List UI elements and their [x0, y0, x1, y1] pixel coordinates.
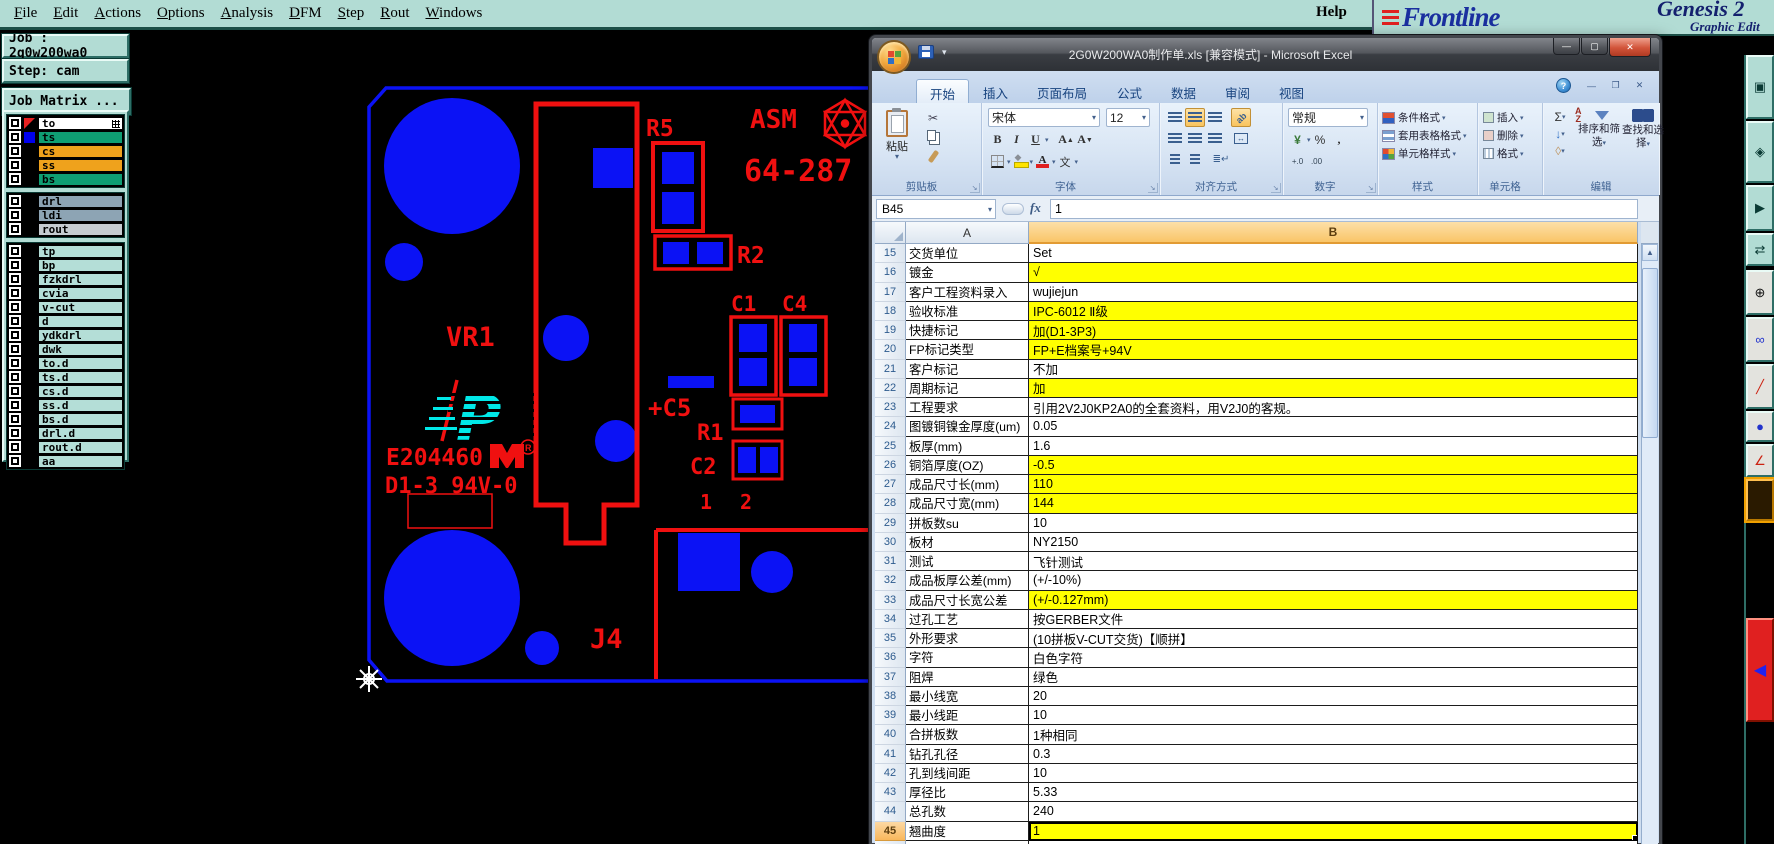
- menu-item-dfm[interactable]: DFM: [281, 3, 330, 24]
- frontline-logo: Frontline: [1382, 2, 1500, 33]
- row-header-19[interactable]: 19: [875, 321, 906, 340]
- row-header-45[interactable]: 45: [875, 822, 906, 841]
- sheet-grid[interactable]: 15交货单位Set16镀金√17客户工程资料录入wujiejun18验收标准IP…: [875, 244, 1638, 844]
- spec-value-cell[interactable]: IPC-6012 Ⅱ级: [1029, 302, 1638, 321]
- toolbar-diamond-button[interactable]: ◈: [1746, 121, 1774, 183]
- currency-button[interactable]: ¥: [1288, 130, 1307, 149]
- layer-visibility-checkbox[interactable]: [9, 329, 21, 341]
- row-header-35[interactable]: 35: [875, 629, 906, 648]
- bold-button[interactable]: B: [988, 130, 1007, 149]
- spec-value-cell[interactable]: wujiejun: [1029, 283, 1638, 302]
- spec-name-cell[interactable]: 成品板厚公差(mm): [906, 571, 1029, 590]
- menu-item-rout[interactable]: Rout: [372, 3, 417, 24]
- spec-name-cell[interactable]: 钻孔孔径: [906, 745, 1029, 764]
- layer-row-bs.d[interactable]: bs.d: [8, 412, 123, 426]
- layer-visibility-checkbox[interactable]: [9, 315, 21, 327]
- scroll-up-icon[interactable]: ▲: [1642, 244, 1658, 261]
- group-label-clipboard: 剪贴板: [872, 179, 971, 194]
- toolbar-active-tool-button[interactable]: [1746, 479, 1774, 521]
- layer-visibility-checkbox[interactable]: [9, 259, 21, 271]
- layer-color-swatch: [23, 195, 38, 208]
- layer-visibility-checkbox[interactable]: [9, 413, 21, 425]
- column-header-a[interactable]: A: [906, 222, 1029, 244]
- layer-row-aa[interactable]: aa: [8, 454, 123, 468]
- toolbar-swap-button[interactable]: ⇄: [1746, 233, 1774, 266]
- row-header-34[interactable]: 34: [875, 610, 906, 629]
- row-header-16[interactable]: 16: [875, 263, 906, 282]
- spec-value-cell[interactable]: -0.5: [1029, 456, 1638, 475]
- layer-name-label[interactable]: ts: [38, 131, 123, 144]
- delete-cells-button[interactable]: 删除▾: [1483, 127, 1524, 144]
- spec-value-cell[interactable]: 1: [1029, 822, 1638, 841]
- help-icon[interactable]: ?: [1556, 78, 1571, 93]
- wrap-text-button[interactable]: ≣↵: [1211, 150, 1231, 169]
- row-header-20[interactable]: 20: [875, 340, 906, 359]
- format-painter-button[interactable]: [922, 147, 944, 165]
- row-header-30[interactable]: 30: [875, 533, 906, 552]
- underline-button[interactable]: U: [1026, 130, 1045, 149]
- row-header-39[interactable]: 39: [875, 706, 906, 725]
- spec-name-cell[interactable]: 周期标记: [906, 379, 1029, 398]
- spec-value-cell[interactable]: 1种相同: [1029, 725, 1638, 744]
- spec-name-cell[interactable]: 合拼板数: [906, 725, 1029, 744]
- menu-item-file[interactable]: File: [6, 3, 45, 24]
- layer-color-swatch: [23, 245, 38, 258]
- spec-value-cell[interactable]: 引用2V2J0KP2A0的全套资料，用V2J0的客规。: [1029, 398, 1638, 417]
- spec-value-cell[interactable]: 飞针测试: [1029, 552, 1638, 571]
- align-bottom-button[interactable]: [1205, 108, 1225, 127]
- layer-name-label[interactable]: drl: [38, 195, 123, 208]
- decrease-decimal-button[interactable]: .00: [1307, 152, 1326, 171]
- row-header-40[interactable]: 40: [875, 725, 906, 744]
- workbook-minimize-icon[interactable]: —: [1584, 78, 1599, 93]
- tab-开始[interactable]: 开始: [916, 79, 969, 103]
- layer-name-label[interactable]: ts.d: [38, 371, 123, 384]
- label-part-number: 64-287: [744, 154, 852, 189]
- label-asm: ASM: [750, 105, 797, 135]
- increase-indent-button[interactable]: [1185, 150, 1205, 169]
- align-center-button[interactable]: [1185, 129, 1205, 148]
- spec-name-cell[interactable]: 成品尺寸长(mm): [906, 475, 1029, 494]
- layer-color-swatch: [23, 371, 38, 384]
- layer-color-swatch: [23, 329, 38, 342]
- layer-row-tp[interactable]: tp: [8, 244, 123, 258]
- layer-name-label[interactable]: ydkdrl: [38, 329, 123, 342]
- layer-row-ts.d[interactable]: ts.d: [8, 370, 123, 384]
- table-row-36: 36字符白色字符: [875, 648, 1638, 667]
- menu-item-edit[interactable]: Edit: [45, 3, 86, 24]
- font-name-select[interactable]: 宋体▾: [988, 108, 1100, 127]
- row-header-36[interactable]: 36: [875, 648, 906, 667]
- spec-value-cell[interactable]: 绿色: [1029, 668, 1638, 687]
- spec-value-cell[interactable]: 加: [1029, 379, 1638, 398]
- layer-visibility-checkbox[interactable]: [9, 287, 21, 299]
- table-row-23: 23工程要求引用2V2J0KP2A0的全套资料，用V2J0的客规。: [875, 398, 1638, 417]
- conditional-formatting-button[interactable]: 条件格式▾: [1382, 109, 1446, 126]
- minimize-button[interactable]: —: [1553, 38, 1580, 55]
- spec-value-cell[interactable]: 10: [1029, 514, 1638, 533]
- layer-name-label[interactable]: ss.d: [38, 399, 123, 412]
- row-header-17[interactable]: 17: [875, 283, 906, 302]
- layer-name-label[interactable]: drl.d: [38, 427, 123, 440]
- spec-name-cell[interactable]: 测试: [906, 552, 1029, 571]
- sort-filter-button[interactable]: AZ 排序和筛选▾: [1575, 107, 1623, 150]
- quick-access-caret-icon[interactable]: ▾: [942, 47, 947, 58]
- save-icon[interactable]: [918, 45, 934, 59]
- fill-color-icon: [1014, 155, 1027, 168]
- layer-row-dwk[interactable]: dwk: [8, 342, 123, 356]
- layer-row-ldi[interactable]: ldi: [8, 208, 123, 222]
- row-header-44[interactable]: 44: [875, 802, 906, 821]
- dialog-launcher-icon[interactable]: ↘: [1366, 183, 1376, 193]
- select-all-corner[interactable]: [875, 222, 906, 244]
- row-header-27[interactable]: 27: [875, 475, 906, 494]
- layer-name-label[interactable]: ss: [38, 159, 123, 172]
- layer-name-label[interactable]: to.d: [38, 357, 123, 370]
- layer-row-d[interactable]: d: [8, 314, 123, 328]
- clear-button[interactable]: ◊▾: [1548, 142, 1572, 159]
- layer-row-to[interactable]: to: [8, 116, 123, 130]
- layer-name-label[interactable]: d: [38, 315, 123, 328]
- table-row-40: 40合拼板数1种相同: [875, 725, 1638, 744]
- row-header-18[interactable]: 18: [875, 302, 906, 321]
- spec-value-cell[interactable]: 5.33: [1029, 783, 1638, 802]
- toolbar-play-button[interactable]: ▶: [1746, 185, 1774, 231]
- font-size-select[interactable]: 12▾: [1106, 108, 1150, 127]
- row-header-29[interactable]: 29: [875, 514, 906, 533]
- layer-color-swatch: [23, 399, 38, 412]
- spec-name-cell[interactable]: FP标记类型: [906, 340, 1029, 359]
- layer-name-label[interactable]: to: [38, 117, 123, 130]
- spec-value-cell[interactable]: FP+E档案号+94V: [1029, 340, 1638, 359]
- row-header-23[interactable]: 23: [875, 398, 906, 417]
- ribbon-group-styles: 条件格式▾ 套用表格格式▾ 单元格样式▾ 样式: [1378, 103, 1478, 195]
- autosum-button[interactable]: Σ▾: [1548, 108, 1572, 125]
- toolbar-angle-button[interactable]: ∠: [1746, 444, 1774, 477]
- layer-name-label[interactable]: ldi: [38, 209, 123, 222]
- dialog-launcher-icon[interactable]: ↘: [1148, 183, 1158, 193]
- spec-name-cell[interactable]: 验收标准: [906, 302, 1029, 321]
- spec-name-cell[interactable]: 板厚(mm): [906, 437, 1029, 456]
- tab-视图[interactable]: 视图: [1266, 79, 1317, 103]
- row-header-32[interactable]: 32: [875, 571, 906, 590]
- svg-text:R: R: [525, 443, 532, 453]
- layer-name-label[interactable]: cvia: [38, 287, 123, 300]
- ribbon-group-font: 宋体▾ 12▾ B I U ▾ A▲ A▼ ▾ ▾ A▾ 文▾: [982, 103, 1160, 195]
- grow-font-button[interactable]: A▲: [1057, 130, 1076, 149]
- spec-name-cell[interactable]: 交货单位: [906, 244, 1029, 263]
- align-middle-button[interactable]: [1185, 108, 1205, 127]
- layer-row-cs.d[interactable]: cs.d: [8, 384, 123, 398]
- layer-group-2: drlldirout: [6, 192, 125, 238]
- spec-name-cell[interactable]: 拼板数su: [906, 514, 1029, 533]
- group-label-number: 数字: [1283, 179, 1367, 194]
- ribbon-tab-strip: 开始插入页面布局公式数据审阅视图 ? — ❐ ✕: [872, 71, 1659, 103]
- layer-name-label[interactable]: bs: [38, 173, 123, 186]
- layer-visibility-checkbox[interactable]: [9, 427, 21, 439]
- layer-name-label[interactable]: bp: [38, 259, 123, 272]
- toolbar-dot-button[interactable]: ●: [1746, 411, 1774, 442]
- layer-name-label[interactable]: cs: [38, 145, 123, 158]
- number-format-select[interactable]: 常规▾: [1288, 108, 1368, 127]
- layer-row-ydkdrl[interactable]: ydkdrl: [8, 328, 123, 342]
- spec-value-cell[interactable]: 20: [1029, 687, 1638, 706]
- layer-visibility-checkbox[interactable]: [9, 399, 21, 411]
- dialog-launcher-icon[interactable]: ↘: [1271, 183, 1281, 193]
- find-select-button[interactable]: 查找和选择▾: [1619, 107, 1667, 151]
- menu-item-analysis[interactable]: Analysis: [213, 3, 282, 24]
- layer-row-ss.d[interactable]: ss.d: [8, 398, 123, 412]
- scrollbar-thumb[interactable]: [1642, 268, 1658, 438]
- group-label-styles: 样式: [1378, 179, 1467, 194]
- row-header-28[interactable]: 28: [875, 494, 906, 513]
- workbook-close-icon[interactable]: ✕: [1632, 78, 1647, 93]
- row-header-37[interactable]: 37: [875, 668, 906, 687]
- spec-name-cell[interactable]: 过孔工艺: [906, 610, 1029, 629]
- layer-visibility-checkbox[interactable]: [9, 441, 21, 453]
- menu-item-step[interactable]: Step: [330, 3, 373, 24]
- fx-icon[interactable]: fx: [1030, 200, 1041, 216]
- copy-button[interactable]: [922, 128, 944, 146]
- spec-name-cell[interactable]: 外形要求: [906, 629, 1029, 648]
- layer-name-label[interactable]: aa: [38, 455, 123, 468]
- font-color-button[interactable]: A: [1033, 152, 1052, 171]
- spec-name-cell[interactable]: 成品尺寸长宽公差: [906, 591, 1029, 610]
- layer-row-drl.d[interactable]: drl.d: [8, 426, 123, 440]
- layer-row-drl[interactable]: drl: [8, 194, 123, 208]
- spec-name-cell[interactable]: 快捷标记: [906, 321, 1029, 340]
- layer-color-swatch: [23, 315, 38, 328]
- phonetic-button[interactable]: 文: [1056, 152, 1075, 171]
- toolbar-crosshair-button[interactable]: ⊕: [1746, 270, 1774, 315]
- group-label-font: 字体: [982, 179, 1149, 194]
- spec-name-cell[interactable]: 客户标记: [906, 360, 1029, 379]
- tab-审阅[interactable]: 审阅: [1212, 79, 1263, 103]
- spec-value-cell[interactable]: (10拼板V-CUT交货)【顺拼】: [1029, 629, 1638, 648]
- increase-decimal-button[interactable]: +.0: [1288, 152, 1307, 171]
- layer-visibility-checkbox[interactable]: [9, 173, 21, 185]
- spec-name-cell[interactable]: 厚径比: [906, 783, 1029, 802]
- layer-visibility-checkbox[interactable]: [9, 131, 21, 143]
- maximize-button[interactable]: ▢: [1581, 38, 1608, 55]
- spec-value-cell[interactable]: 0.05: [1029, 417, 1638, 436]
- tab-数据[interactable]: 数据: [1158, 79, 1209, 103]
- layer-visibility-checkbox[interactable]: [9, 371, 21, 383]
- merge-center-button[interactable]: ↔: [1231, 129, 1251, 148]
- spec-value-cell[interactable]: 0.3: [1029, 745, 1638, 764]
- dialog-launcher-icon[interactable]: ↘: [970, 183, 980, 193]
- spec-name-cell[interactable]: 阻焊: [906, 668, 1029, 687]
- layer-visibility-checkbox[interactable]: [9, 223, 21, 235]
- orientation-button[interactable]: ab: [1231, 108, 1251, 127]
- spec-value-cell[interactable]: (+/-0.127mm): [1029, 591, 1638, 610]
- spec-name-cell[interactable]: 板材: [906, 533, 1029, 552]
- spec-name-cell[interactable]: 孔到线间距: [906, 764, 1029, 783]
- comma-button[interactable]: ,: [1330, 130, 1349, 149]
- spec-value-cell[interactable]: Set: [1029, 244, 1638, 263]
- spec-name-cell[interactable]: 工程要求: [906, 398, 1029, 417]
- layer-visibility-checkbox[interactable]: [9, 159, 21, 171]
- layer-row-bs[interactable]: bs: [8, 172, 123, 186]
- spec-value-cell[interactable]: 白色字符: [1029, 648, 1638, 667]
- layer-name-label[interactable]: bs.d: [38, 413, 123, 426]
- row-header-43[interactable]: 43: [875, 783, 906, 802]
- format-cells-button[interactable]: 格式▾: [1483, 145, 1524, 162]
- spec-name-cell[interactable]: 总孔数: [906, 802, 1029, 821]
- toolbar-link-button[interactable]: ∞: [1746, 317, 1774, 362]
- layer-row-ss[interactable]: ss: [8, 158, 123, 172]
- layer-name-label[interactable]: rout.d: [38, 441, 123, 454]
- spec-value-cell[interactable]: 240: [1029, 802, 1638, 821]
- spec-value-cell[interactable]: (+/-10%): [1029, 571, 1638, 590]
- spec-name-cell[interactable]: 铜箔厚度(OZ): [906, 456, 1029, 475]
- wrap-icon: ≣↵: [1213, 154, 1230, 165]
- spec-value-cell[interactable]: 不加: [1029, 360, 1638, 379]
- name-box[interactable]: B45▾: [876, 199, 996, 219]
- layer-name-label[interactable]: rout: [38, 223, 123, 236]
- row-header-26[interactable]: 26: [875, 456, 906, 475]
- menu-item-windows[interactable]: Windows: [417, 3, 490, 24]
- spec-value-cell[interactable]: 加(D1-3P3): [1029, 321, 1638, 340]
- label-c2: C2: [690, 455, 717, 480]
- row-header-33[interactable]: 33: [875, 591, 906, 610]
- layer-visibility-checkbox[interactable]: [9, 117, 21, 129]
- format-as-table-button[interactable]: 套用表格格式▾: [1382, 127, 1467, 144]
- layer-row-cs[interactable]: cs: [8, 144, 123, 158]
- layer-name-label[interactable]: tp: [38, 245, 123, 258]
- layer-visibility-checkbox[interactable]: [9, 195, 21, 207]
- spec-name-cell[interactable]: 最小线距: [906, 706, 1029, 725]
- row-header-22[interactable]: 22: [875, 379, 906, 398]
- spec-value-cell[interactable]: 按GERBER文件: [1029, 610, 1638, 629]
- spec-value-cell[interactable]: 10: [1029, 764, 1638, 783]
- label-pin2: 2: [740, 490, 752, 514]
- toolbar-pointer-button[interactable]: ◀: [1746, 618, 1774, 722]
- layer-visibility-checkbox[interactable]: [9, 301, 21, 313]
- layer-name-label[interactable]: dwk: [38, 343, 123, 356]
- layer-name-label[interactable]: fzkdrl: [38, 273, 123, 286]
- layer-visibility-checkbox[interactable]: [9, 385, 21, 397]
- spec-value-cell[interactable]: 1.6: [1029, 437, 1638, 456]
- row-header-21[interactable]: 21: [875, 360, 906, 379]
- layer-row-fzkdrl[interactable]: fzkdrl: [8, 272, 123, 286]
- spec-value-cell[interactable]: 110: [1029, 475, 1638, 494]
- spec-value-cell[interactable]: 144: [1029, 494, 1638, 513]
- layer-row-ts[interactable]: ts: [8, 130, 123, 144]
- cell-styles-button[interactable]: 单元格样式▾: [1382, 145, 1456, 162]
- menu-item-help[interactable]: Help: [1316, 4, 1347, 21]
- align-right-button[interactable]: [1205, 129, 1225, 148]
- row-header-24[interactable]: 24: [875, 417, 906, 436]
- spec-name-cell[interactable]: 翘曲度: [906, 822, 1029, 841]
- spec-name-cell[interactable]: 客户工程资料录入: [906, 283, 1029, 302]
- layer-color-swatch: [23, 145, 38, 158]
- row-header-38[interactable]: 38: [875, 687, 906, 706]
- toolbar-slash-button[interactable]: ╱: [1746, 364, 1774, 409]
- layer-row-rout[interactable]: rout: [8, 222, 123, 236]
- spec-value-cell[interactable]: NY2150: [1029, 533, 1638, 552]
- workbook-restore-icon[interactable]: ❐: [1608, 78, 1623, 93]
- layer-color-swatch: [23, 385, 38, 398]
- layer-color-swatch: [23, 131, 38, 144]
- formula-input[interactable]: 1: [1050, 199, 1638, 219]
- spec-name-cell[interactable]: 镀金: [906, 263, 1029, 282]
- layer-row-v-cut[interactable]: v-cut: [8, 300, 123, 314]
- menu-item-actions[interactable]: Actions: [86, 3, 149, 24]
- close-button[interactable]: ✕: [1609, 38, 1651, 57]
- spec-name-cell[interactable]: 最小线宽: [906, 687, 1029, 706]
- row-header-15[interactable]: 15: [875, 244, 906, 263]
- layer-visibility-checkbox[interactable]: [9, 245, 21, 257]
- layer-visibility-checkbox[interactable]: [9, 209, 21, 221]
- spec-name-cell[interactable]: 图镀铜镍金厚度(um): [906, 417, 1029, 436]
- insert-cells-button[interactable]: 插入▾: [1483, 109, 1524, 126]
- fill-color-button[interactable]: [1011, 152, 1030, 171]
- decrease-indent-button[interactable]: [1165, 150, 1185, 169]
- tab-公式[interactable]: 公式: [1104, 79, 1155, 103]
- ribbon-group-alignment: ab ↔ ≣↵ 对齐方式 ↘: [1160, 103, 1283, 195]
- layer-visibility-checkbox[interactable]: [9, 343, 21, 355]
- tab-页面布局[interactable]: 页面布局: [1024, 79, 1100, 103]
- layer-name-label[interactable]: v-cut: [38, 301, 123, 314]
- layer-row-cvia[interactable]: cvia: [8, 286, 123, 300]
- italic-button[interactable]: I: [1007, 130, 1026, 149]
- row-header-42[interactable]: 42: [875, 764, 906, 783]
- spec-value-cell[interactable]: 10: [1029, 706, 1638, 725]
- label-r5: R5: [646, 116, 674, 142]
- vertical-scrollbar[interactable]: ▲: [1641, 244, 1658, 844]
- fill-button[interactable]: ↓▾: [1548, 125, 1572, 142]
- excel-titlebar[interactable]: 2G0W200WA0制作单.xls [兼容模式] - Microsoft Exc…: [872, 38, 1659, 71]
- shrink-font-button[interactable]: A▼: [1076, 130, 1095, 149]
- tab-插入[interactable]: 插入: [970, 79, 1021, 103]
- label-c4: C4: [782, 292, 807, 316]
- table-row-29: 29拼板数su10: [875, 514, 1638, 533]
- layer-row-to.d[interactable]: to.d: [8, 356, 123, 370]
- format-painter-icon: [927, 149, 939, 163]
- layer-visibility-checkbox[interactable]: [9, 357, 21, 369]
- spec-name-cell[interactable]: 成品尺寸宽(mm): [906, 494, 1029, 513]
- align-left-button[interactable]: [1165, 129, 1185, 148]
- frontline-logo-text: Frontline: [1402, 2, 1500, 33]
- toolbar-window-button[interactable]: ▣: [1746, 55, 1774, 119]
- align-top-button[interactable]: [1165, 108, 1185, 127]
- borders-button[interactable]: [988, 152, 1007, 171]
- cut-button[interactable]: ✂: [922, 109, 944, 127]
- active-layer-arrow-icon: [23, 117, 38, 130]
- spec-value-cell[interactable]: √: [1029, 263, 1638, 282]
- layer-row-rout.d[interactable]: rout.d: [8, 440, 123, 454]
- spec-name-cell[interactable]: 字符: [906, 648, 1029, 667]
- layer-color-swatch: [23, 455, 38, 468]
- row-header-31[interactable]: 31: [875, 552, 906, 571]
- pcb-canvas[interactable]: R5 ASM 64-287 R2 C1 C4 VR1 +C5 R1 C2 1 2…: [130, 30, 872, 844]
- column-header-b[interactable]: B: [1029, 222, 1638, 244]
- paste-button[interactable]: 粘贴 ▾: [877, 107, 917, 173]
- office-button[interactable]: [877, 40, 911, 74]
- menu-item-options[interactable]: Options: [149, 3, 213, 24]
- layer-visibility-checkbox[interactable]: [9, 273, 21, 285]
- layer-visibility-checkbox[interactable]: [9, 455, 21, 467]
- layer-visibility-checkbox[interactable]: [9, 145, 21, 157]
- row-header-41[interactable]: 41: [875, 745, 906, 764]
- row-header-25[interactable]: 25: [875, 437, 906, 456]
- layer-name-label[interactable]: cs.d: [38, 385, 123, 398]
- layer-row-bp[interactable]: bp: [8, 258, 123, 272]
- percent-button[interactable]: %: [1311, 130, 1330, 149]
- cell-styles-icon: [1382, 148, 1395, 160]
- layer-color-swatch: [23, 343, 38, 356]
